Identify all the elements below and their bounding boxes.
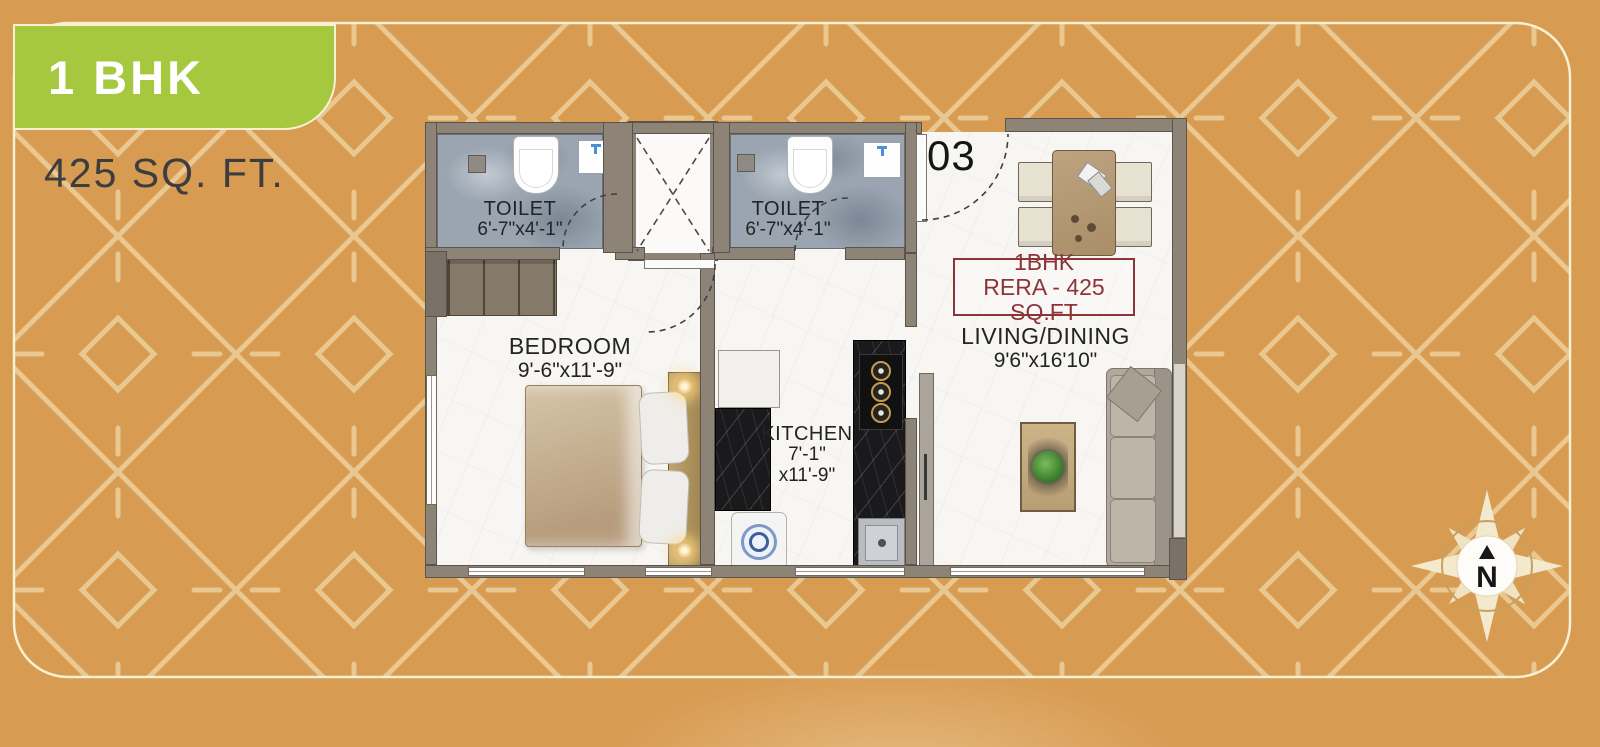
unit-number: 03 <box>927 132 976 180</box>
stove-burner <box>871 403 891 423</box>
wall-top-left <box>425 122 922 134</box>
toilet-2-wc <box>787 136 833 194</box>
bed-pillow <box>638 469 690 545</box>
wall-bedroom-kitchen <box>700 253 715 565</box>
corner-column <box>1169 538 1187 580</box>
bedroom-window <box>468 567 585 576</box>
table-decor <box>1075 235 1082 242</box>
dining-chair <box>1018 162 1055 202</box>
living-dining-label: LIVING/DINING 9'6"x16'10" <box>923 324 1168 372</box>
wall-top-right <box>1005 118 1187 132</box>
sofa-cushion <box>1110 499 1156 563</box>
kitchen-label: KITCHEN 7'-1" x11'-9" <box>755 423 859 487</box>
plan-type-badge: 1 BHK <box>13 24 336 130</box>
living-dining-name: LIVING/DINING <box>923 324 1168 349</box>
living-side-window <box>1173 363 1186 538</box>
kitchen-platform <box>718 350 780 408</box>
duct-shaft <box>629 122 717 260</box>
table-decor <box>1071 215 1079 223</box>
kitchen-dims-2: x11'-9" <box>755 466 859 487</box>
stove-burner <box>871 382 891 402</box>
kitchen-sliding-door <box>919 373 934 575</box>
toilet-1-label: TOILET 6'-7"x4'-1" <box>445 198 595 241</box>
floor-plan-poster: N 1 BHK 425 SQ. FT. <box>0 0 1600 747</box>
dining-table <box>1052 150 1116 256</box>
rera-info-box: 1BHK RERA - 425 SQ.FT <box>953 258 1135 316</box>
dining-chair <box>1115 207 1152 247</box>
toilet-2-label: TOILET 6'-7"x4'-1" <box>713 198 863 241</box>
rera-line2: RERA - 425 SQ.FT <box>955 275 1133 325</box>
kitchen-dims-1: 7'-1" <box>755 445 859 466</box>
kitchen-name: KITCHEN <box>755 423 859 445</box>
bedside-lamp <box>676 378 693 395</box>
toilet-2-name: TOILET <box>713 198 863 220</box>
wall-left-pier <box>425 251 447 317</box>
toilet-1-dims: 6'-7"x4'-1" <box>445 220 595 241</box>
living-window <box>950 567 1145 576</box>
bedroom-window-2 <box>645 567 712 576</box>
bedroom-name: BEDROOM <box>480 334 660 359</box>
toilet-1-name: TOILET <box>445 198 595 220</box>
floor-plan: TOILET 6'-7"x4'-1" TOILET 6'-7"x4'-1" 03… <box>425 118 1187 580</box>
wall-kitchen-living-lower <box>905 418 917 565</box>
kitchen-window <box>795 567 905 576</box>
toilet-1-shower-icon <box>468 155 486 173</box>
bedroom-door-leaf <box>644 259 715 269</box>
bedroom-dims: 9'-6"x11'-9" <box>480 359 660 382</box>
toilet-2-shower-icon <box>737 154 755 172</box>
bed-pillow <box>638 391 690 465</box>
wall-kitchen-living-upper <box>905 253 917 327</box>
dining-chair <box>1018 207 1055 247</box>
stove-burner <box>871 361 891 381</box>
rera-line1: 1BHK <box>955 250 1133 275</box>
toilet-2-dims: 6'-7"x4'-1" <box>713 220 863 241</box>
wardrobe <box>447 256 557 316</box>
living-dining-dims: 9'6"x16'10" <box>923 349 1168 372</box>
bedroom-side-window <box>426 375 437 505</box>
toilet-2-washbasin <box>863 142 901 178</box>
sofa-cushion <box>1110 437 1156 499</box>
compass-north-label: N <box>1476 561 1498 594</box>
kitchen-sink <box>858 518 905 568</box>
sofa <box>1106 368 1172 568</box>
potted-plant <box>1032 451 1064 483</box>
washing-machine <box>731 512 787 571</box>
tap-icon <box>877 146 887 149</box>
bedside-lamp <box>676 542 693 559</box>
bed <box>525 385 642 547</box>
table-decor <box>1087 223 1096 232</box>
badge-label: 1 BHK <box>15 50 204 105</box>
wall-kitchen-top-b <box>845 247 905 260</box>
toilet-1-wc <box>513 136 559 194</box>
gas-stove <box>859 354 903 430</box>
dining-chair <box>1115 162 1152 202</box>
main-door-leaf <box>916 134 927 222</box>
tap-icon <box>591 144 601 147</box>
bedroom-label: BEDROOM 9'-6"x11'-9" <box>480 334 660 382</box>
wall-toilet1-shaft <box>603 122 633 253</box>
area-label: 425 SQ. FT. <box>44 150 285 197</box>
